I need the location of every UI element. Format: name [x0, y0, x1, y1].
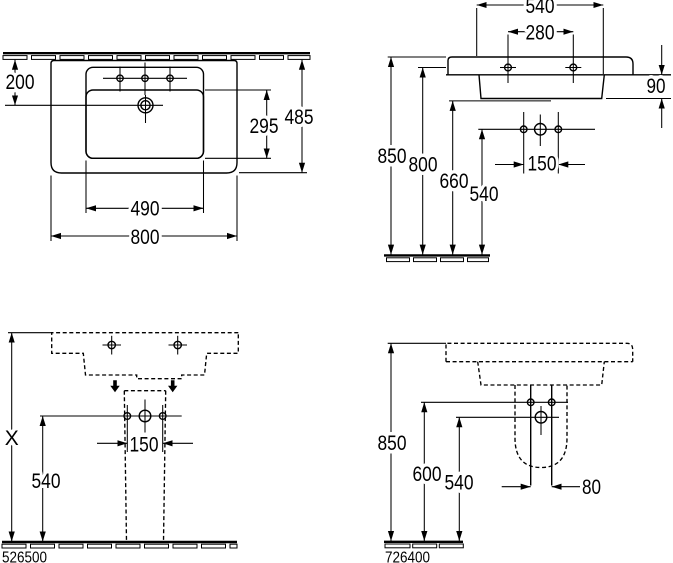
dim-label-outlet-hole-spacing: 150 — [130, 434, 159, 457]
mounting-direction-arrow-right — [168, 380, 177, 392]
dim-outlet-height: 540 — [32, 416, 61, 542]
dim-outlet-hole-spacing: 150 — [495, 153, 585, 176]
dim-label-overall-height: X — [5, 427, 19, 450]
dim-underside-height: 660 — [440, 101, 469, 255]
technical-drawing: 200 295 485 490 800 — [0, 0, 673, 563]
dim-label-underside-height: 660 — [440, 170, 469, 193]
dim-overall-depth: 485 — [285, 60, 314, 173]
view-pedestal-side: 850 600 540 80 726400 — [378, 343, 633, 563]
dim-label-upper-width: 540 — [526, 0, 555, 18]
dim-rim-height: 850 — [378, 57, 407, 255]
dim-label-overall-depth: 485 — [285, 106, 314, 129]
dim-apron-height: 90 — [647, 45, 666, 128]
floor-hatch — [2, 542, 237, 548]
part-number-pedestal-side: 726400 — [385, 550, 430, 563]
dim-label-rim-height: 850 — [378, 432, 407, 455]
extension-lines — [8, 333, 187, 452]
dim-label-fixing-hole-spacing: 280 — [526, 22, 555, 45]
dim-label-outlet-height: 540 — [32, 470, 61, 493]
dim-label-overall-width: 800 — [131, 226, 160, 249]
basin-hidden-outline — [52, 333, 239, 379]
basin-rim-outline — [448, 57, 633, 75]
dim-overall-width: 800 — [51, 226, 237, 249]
mounting-direction-arrow-left — [110, 380, 119, 392]
dim-outlet-height: 540 — [445, 417, 474, 541]
view-washbasin-plan: 200 295 485 490 800 — [3, 53, 314, 249]
dim-fixing-hole-spacing: 280 — [508, 22, 573, 45]
dim-bowl-width: 490 — [86, 198, 204, 221]
dim-label-rim-height: 850 — [378, 145, 407, 168]
dim-label-apron-height: 90 — [647, 75, 666, 98]
dim-outlet-hole-spacing: 150 — [97, 434, 193, 457]
dim-label-outlet-width: 80 — [582, 476, 601, 499]
dim-bowl-depth: 295 — [250, 90, 279, 158]
wall-hatch — [3, 53, 310, 59]
floor-hatch — [384, 542, 463, 548]
part-number-pedestal-front: 526500 — [2, 550, 47, 563]
dim-label-fixing-height: 800 — [409, 154, 438, 177]
dim-label-outlet-height: 540 — [470, 183, 499, 206]
dim-wall-to-drain: 200 — [6, 60, 35, 106]
extension-lines — [388, 343, 568, 435]
dim-label-outlet-height: 540 — [445, 472, 474, 495]
dim-fixing-height: 800 — [409, 68, 438, 255]
dim-upper-width: 540 — [477, 0, 604, 18]
floor-hatch — [384, 255, 490, 261]
dim-rim-height: 850 — [378, 343, 407, 541]
view-washbasin-front: 540 280 90 850 800 660 540 — [378, 0, 672, 262]
dim-label-wall-to-drain: 200 — [6, 71, 35, 94]
dim-label-bowl-width: 490 — [131, 198, 160, 221]
drawing-canvas: 200 295 485 490 800 — [0, 0, 673, 563]
dim-outlet-height: 540 — [470, 129, 499, 254]
dim-label-outlet-hole-spacing: 150 — [528, 153, 557, 176]
dim-label-bowl-depth: 295 — [250, 115, 279, 138]
dim-label-fixing-height: 600 — [413, 463, 442, 486]
tap-hole-centerlines — [103, 63, 187, 124]
bowl-profile — [479, 75, 604, 99]
dim-overall-height: X — [5, 333, 19, 542]
basin-hidden-outline — [446, 343, 633, 385]
view-pedestal-front: X 540 150 526500 — [2, 333, 238, 563]
dim-fixing-height: 600 — [413, 402, 442, 541]
basin-outline — [51, 61, 237, 174]
